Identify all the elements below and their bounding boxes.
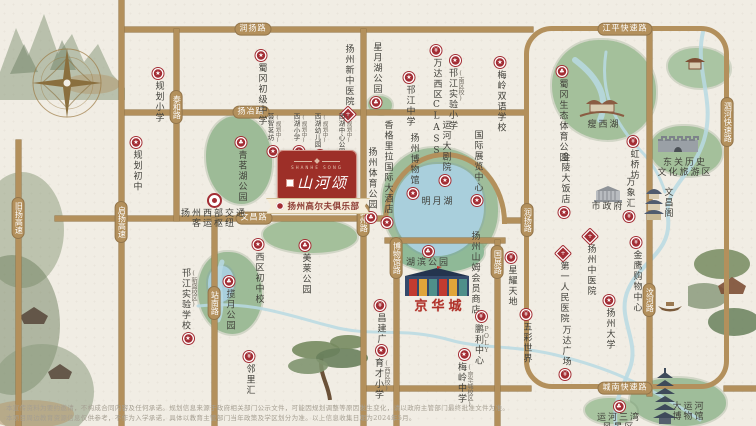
- park-badge-icon: ♣: [371, 97, 382, 108]
- road-label: 润扬路: [235, 23, 272, 36]
- poi-label-line: 文化旅游区: [657, 169, 712, 178]
- poi-marker: ★邗江中学: [404, 72, 415, 127]
- poi-marker: 星月湖公园♣: [371, 42, 382, 108]
- dongguan-wall-icon: [656, 134, 700, 154]
- poi-marker: ¥星耀天地: [506, 252, 517, 307]
- poi-label: 扬州大学: [605, 308, 614, 350]
- poi-label: 京华城: [414, 300, 465, 313]
- poi-marker: 东关历史文化旅游区: [657, 159, 712, 178]
- poi-label: 荟智茗坊: [267, 113, 274, 141]
- poi-label: 万达广场: [561, 325, 570, 367]
- road-segment: [16, 140, 21, 426]
- temple-northeast-icon: [682, 54, 708, 72]
- poi-marker: 扬州山姆会员商店: [470, 231, 479, 315]
- park-badge-icon: ♣: [613, 401, 624, 412]
- poi-marker: 荟智茗坊(规划中)★: [267, 113, 280, 157]
- poi-label-line: 运河三湾: [597, 414, 641, 423]
- slender-west-lake-pavilion-icon: [578, 94, 626, 120]
- road-label: 江平快速路: [598, 23, 653, 36]
- poi-label: 西湖小学: [293, 113, 300, 141]
- landmark-badge-icon: ★: [472, 195, 483, 206]
- poi-marker: 万象汇¥: [624, 177, 635, 222]
- road-segment: [724, 386, 756, 391]
- mall-badge-icon: ¥: [375, 300, 386, 311]
- poi-label: 扬州山姆会员商店: [470, 231, 479, 315]
- poi-label: 蜀冈生态体育公园: [558, 79, 567, 163]
- poi-marker: ♣揽月公园: [224, 276, 235, 331]
- poi-label-line: 扬州西部交通: [181, 210, 247, 219]
- hotel-badge-icon: ★: [382, 217, 393, 228]
- school-badge-icon: ★: [376, 345, 387, 356]
- poi-note: (规划中): [274, 115, 280, 144]
- poi-label-line: 大运河: [672, 403, 705, 412]
- hospital-badge-icon: +: [582, 229, 598, 245]
- golf-club-label: 扬州高尔夫俱乐部: [287, 200, 359, 212]
- poi-label: 扬州博物馆: [409, 133, 418, 186]
- project-logo-badge: SHANHE SONG 山河颂: [277, 150, 357, 202]
- hotel-badge-icon: ★: [559, 207, 570, 218]
- poi-label: 邻里汇: [245, 364, 254, 396]
- wenchang-pavilion-icon: [644, 184, 664, 220]
- poi-label: 规划小学: [154, 81, 163, 123]
- poi-label: 西区初中校: [254, 252, 263, 305]
- school-badge-icon: ★: [183, 333, 194, 344]
- school-badge-icon: ★: [131, 137, 142, 148]
- mall-badge-icon: ¥: [244, 351, 255, 362]
- golf-club-icon: [276, 202, 284, 210]
- poi-marker: ★梅岭中学(京华城校区): [456, 349, 472, 408]
- poi-label: 扬州西部交通客运枢纽: [181, 210, 247, 229]
- poi-marker: 明月湖: [421, 198, 454, 207]
- poi-marker: 万达广场¥: [560, 325, 571, 380]
- pine-tree-illustration: [286, 326, 372, 400]
- poi-label: 扬州中医院: [586, 244, 595, 297]
- poi-label: 梅岭双语学校: [496, 70, 505, 133]
- poi-label: 梅岭中学: [456, 362, 465, 404]
- poi-label: 万象汇: [625, 177, 634, 209]
- poi-label: 星耀天地: [507, 265, 516, 307]
- poi-note: (新盛校区): [190, 270, 196, 308]
- school-badge-icon: ★: [459, 349, 470, 360]
- road-label: 汶河路: [643, 283, 656, 317]
- poi-marker: ★梅岭双语学校: [495, 57, 506, 133]
- poi-note: (规划中): [300, 115, 306, 144]
- poi-marker: ¥鹏利中心POLY: [473, 311, 489, 366]
- poi-marker: +第一人民医院: [558, 248, 569, 324]
- golf-club-ribbon: 扬州高尔夫俱乐部: [266, 198, 370, 214]
- logo-ornament: [294, 159, 340, 163]
- school-badge-icon: ★: [253, 239, 264, 250]
- road-label: 站南路: [208, 286, 221, 320]
- poi-brand-label: 京华城: [414, 300, 465, 313]
- poi-label: 东关历史文化旅游区: [657, 159, 712, 178]
- disclaimer-line-2: 本项目周边教育资源信息仅供参考，不作为入学承诺，具体以教育主管部门当年政策及学区…: [6, 412, 416, 422]
- poi-marker: 邗江实验学校(新盛校区)★: [180, 268, 196, 344]
- jinghuacheng-mall-illustration: [404, 266, 470, 298]
- disclaimer-line-1: 本宣传资料为要约邀请，不构成合同内容及任何承诺。规划信息来源于政府相关部门公示文…: [6, 402, 509, 412]
- park-badge-icon: ♣: [236, 137, 247, 148]
- school-badge-icon: ★: [495, 57, 506, 68]
- landmark-badge-icon: ★: [440, 175, 451, 186]
- city-hall-building-icon: [594, 186, 622, 202]
- boat-icon: [656, 300, 684, 312]
- mall-badge-icon: ¥: [476, 311, 487, 322]
- logo-latin-text: SHANHE SONG: [291, 165, 343, 170]
- school-badge-icon: ★: [404, 72, 415, 83]
- poi-note: (西区校): [383, 360, 389, 392]
- park-badge-icon: ♣: [422, 246, 433, 257]
- poi-label: 西湖中心公园: [338, 113, 345, 155]
- mall-badge-icon: ¥: [560, 369, 571, 380]
- poi-marker: 市政府: [591, 203, 624, 212]
- poi-label: 金鹰购物中心: [632, 250, 641, 313]
- road-label: 泰和路: [170, 90, 183, 124]
- poi-marker: 金陵大饭店★: [559, 152, 570, 218]
- poi-label: 蜀冈初级中学: [257, 63, 266, 126]
- road-label: 国展路: [491, 245, 504, 279]
- poi-marker: ♣美莱公园: [300, 240, 311, 295]
- poi-marker: ♣湖滨公园: [406, 246, 450, 268]
- poi-marker: 香格里拉国际大酒店★: [382, 120, 393, 228]
- poi-marker: ★蜀冈初级中学: [256, 50, 267, 126]
- park-badge-icon: ♣: [300, 240, 311, 251]
- hospital-badge-icon: +: [555, 246, 571, 262]
- transport-hub-icon: [206, 193, 221, 208]
- poi-marker: 国际展览中心★: [472, 130, 483, 206]
- road-segment: [174, 29, 179, 221]
- poi-label: 国际展览中心: [473, 130, 482, 193]
- road-segment: [385, 238, 505, 243]
- poi-label: 明月湖: [421, 198, 454, 207]
- poi-marker: 扬州新中医院+: [343, 44, 354, 120]
- poi-label-line: 博物馆: [672, 413, 705, 422]
- poi-marker: 瘦西湖: [587, 121, 620, 130]
- poi-label: 西湖幼儿园: [314, 113, 321, 148]
- poi-label: 香格里拉国际大酒店: [383, 120, 392, 215]
- landmark-badge-icon: ★: [408, 188, 419, 199]
- poi-marker: 大运河博物馆: [672, 403, 705, 422]
- mall-badge-icon: ¥: [431, 45, 442, 56]
- poi-marker: 运河大剧院★: [440, 120, 451, 186]
- logo-seal-icon: [286, 179, 294, 187]
- road-label: 润扬路: [521, 203, 534, 237]
- poi-note: (规划中): [321, 115, 327, 144]
- school-badge-icon: ★: [256, 50, 267, 61]
- poi-label: 揽月公园: [225, 289, 234, 331]
- poi-marker: ♣蜀冈生态体育公园: [557, 66, 568, 163]
- poi-label: 第一人民医院: [559, 261, 568, 324]
- poi-marker: ♣运河三湾风景区: [597, 401, 641, 426]
- poi-label-line: 东关历史: [663, 159, 707, 168]
- poi-label: 美莱公园: [301, 253, 310, 295]
- poi-label: 运河大剧院: [441, 120, 450, 173]
- poi-label-line: 客运枢纽: [192, 220, 236, 229]
- mall-badge-icon: ¥: [506, 252, 517, 263]
- poi-marker: ¥五彩世界: [521, 309, 532, 364]
- poi-label: 鹏利中心: [473, 324, 482, 366]
- road-label: 博物馆路: [390, 237, 403, 279]
- poi-marker: ★规划初中: [131, 137, 142, 192]
- mall-badge-icon: ¥: [628, 136, 639, 147]
- yangzhou-location-map: SHANHE SONG 山河颂 扬州高尔夫俱乐部 本宣传资料为要约邀请，不构成合…: [0, 0, 756, 426]
- poi-label: 瘦西湖: [587, 121, 620, 130]
- poi-label: 运河三湾风景区: [597, 414, 641, 426]
- mall-badge-icon: ¥: [631, 237, 642, 248]
- poi-marker: ★育才小学(西区校): [373, 345, 389, 400]
- mall-badge-icon: ¥: [521, 309, 532, 320]
- school-badge-icon: ★: [604, 295, 615, 306]
- poi-marker: ★西区初中校: [253, 239, 264, 305]
- compass-rose: [28, 44, 106, 122]
- poi-label: 大运河博物馆: [672, 403, 705, 422]
- poi-label: 育才小学: [373, 358, 382, 400]
- poi-label: 市政府: [591, 203, 624, 212]
- poi-note: POLY: [483, 326, 489, 354]
- poi-label: 湖滨公园: [406, 259, 450, 268]
- road-segment: [212, 218, 217, 426]
- poi-label: 金陵大饭店: [560, 152, 569, 205]
- poi-marker: 扬州西部交通客运枢纽: [181, 193, 247, 229]
- poi-marker: ¥金鹰购物中心: [631, 237, 642, 313]
- road-label: 城南快速路: [598, 382, 653, 395]
- road-segment: [121, 27, 533, 32]
- poi-marker: ★规划小学: [153, 68, 164, 123]
- logo-project-name: 山河颂: [286, 172, 348, 193]
- road-label: 泗河快速路: [721, 97, 734, 147]
- poi-marker: +扬州中医院: [585, 231, 596, 297]
- poi-note: (南区校): [457, 70, 463, 102]
- poi-label: 规划初中: [132, 150, 141, 192]
- poi-label: 虹桥坊: [629, 149, 638, 181]
- poi-label: 五彩世界: [522, 322, 531, 364]
- park-badge-icon: ♣: [557, 66, 568, 77]
- park-badge-icon: ♣: [224, 276, 235, 287]
- poi-label: 扬州新中医院: [344, 44, 353, 107]
- poi-marker: ¥邻里汇: [244, 351, 255, 396]
- poi-label: 邗江中学: [405, 85, 414, 127]
- road-label: 旧扬高速: [12, 197, 25, 239]
- poi-note: (规划中): [345, 115, 351, 144]
- school-badge-icon: ★: [153, 68, 164, 79]
- mall-badge-icon: ¥: [624, 211, 635, 222]
- poi-marker: 扬州博物馆★: [408, 133, 419, 199]
- poi-label: 邗江实验学校: [180, 268, 189, 331]
- poi-label: 文昌阁: [663, 187, 672, 219]
- school-badge-icon: ★: [450, 55, 461, 66]
- poi-marker: 文昌阁: [663, 187, 672, 219]
- road-label: 启扬高速: [115, 201, 128, 243]
- poi-marker: ★扬州大学: [604, 295, 615, 350]
- poi-label: 星月湖公园: [372, 42, 381, 95]
- poi-marker: ¥虹桥坊: [628, 136, 639, 181]
